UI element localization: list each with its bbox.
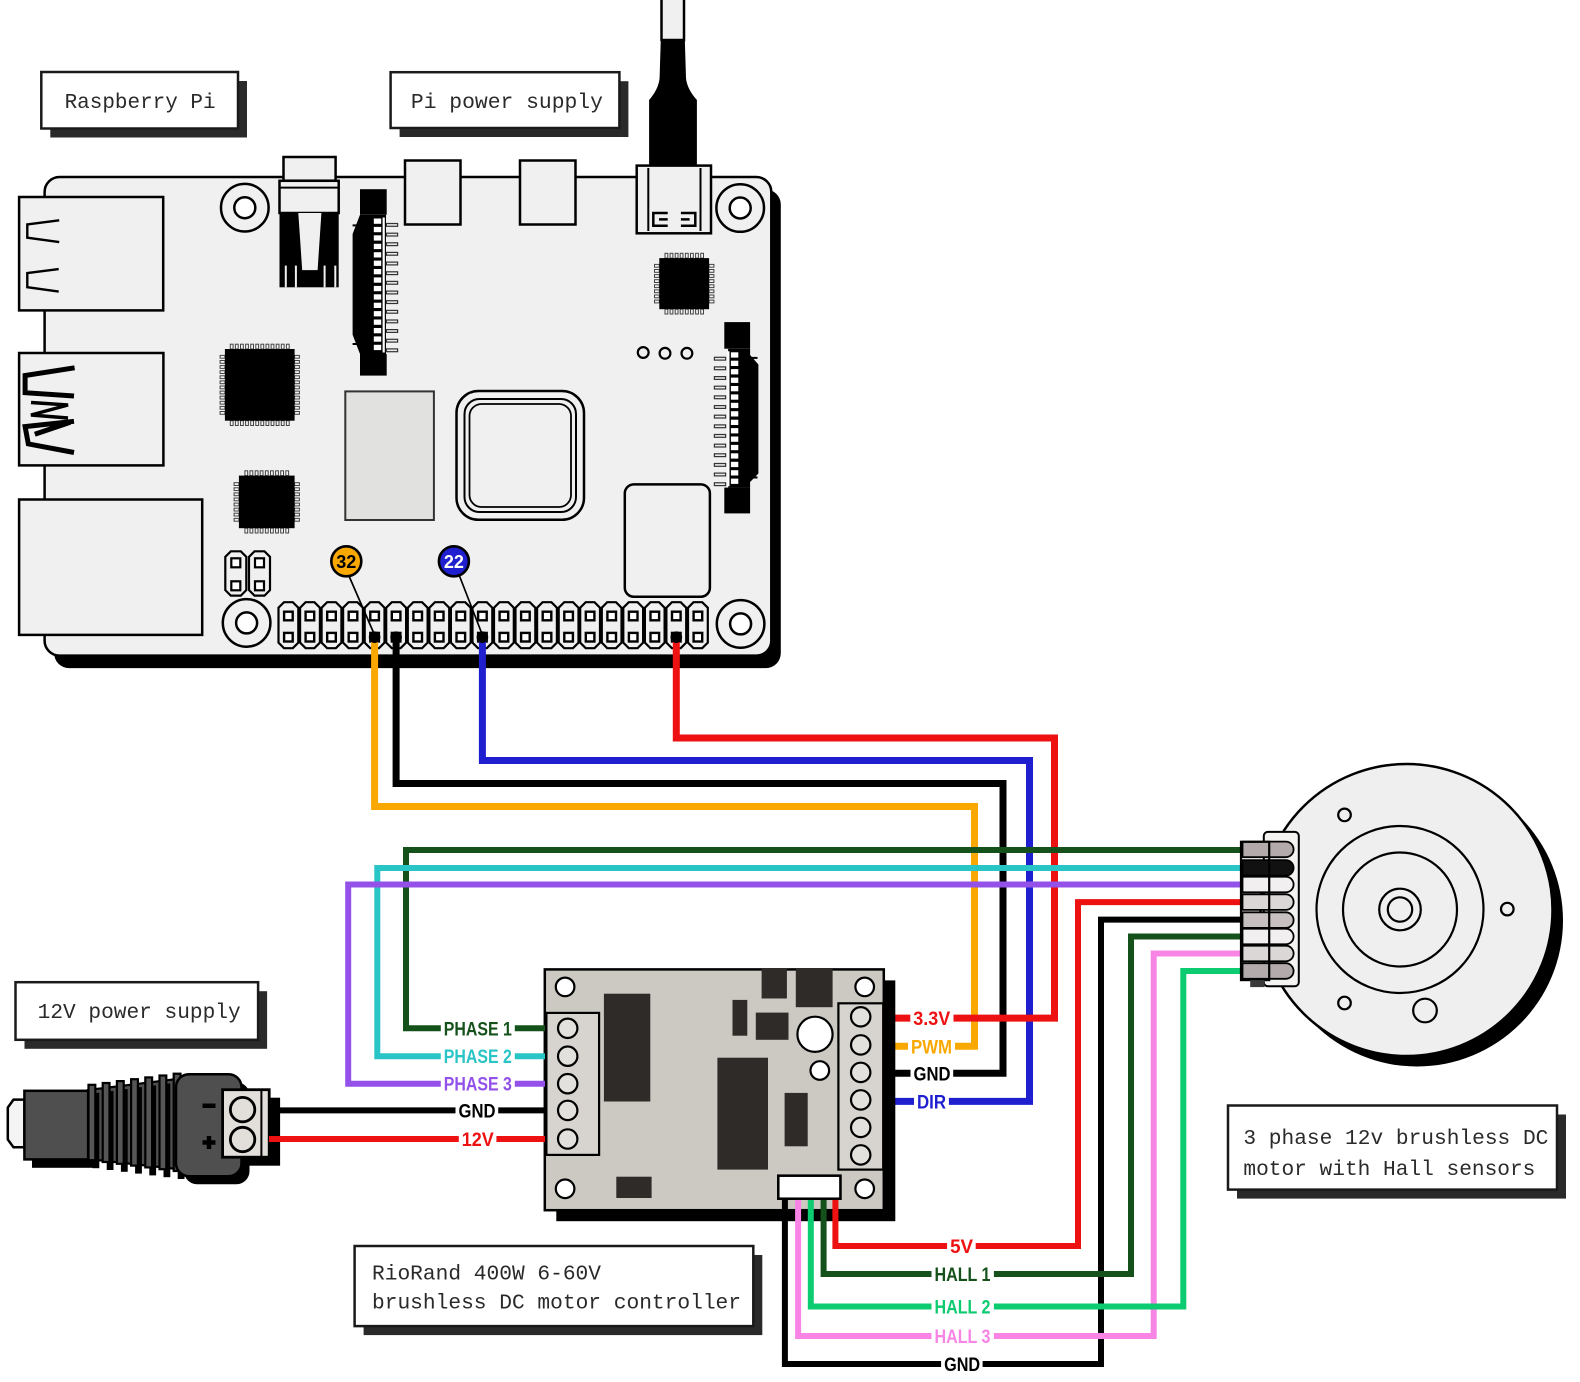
svg-text:5V: 5V [950,1236,973,1258]
svg-text:GND: GND [459,1100,496,1122]
svg-text:3 phase 12v brushless DC: 3 phase 12v brushless DC [1243,1128,1548,1151]
svg-text:32: 32 [336,552,356,572]
svg-text:12V power supply: 12V power supply [38,1002,241,1025]
svg-text:12V: 12V [462,1129,494,1151]
svg-text:PHASE 2: PHASE 2 [444,1046,512,1068]
svg-text:RioRand 400W 6-60V: RioRand 400W 6-60V [372,1264,601,1287]
svg-text:brushless DC motor controller: brushless DC motor controller [372,1293,741,1316]
svg-text:GND: GND [914,1063,951,1085]
svg-text:HALL 2: HALL 2 [935,1297,991,1319]
svg-text:Pi power supply: Pi power supply [411,92,603,115]
svg-text:Raspberry Pi: Raspberry Pi [65,92,216,115]
svg-text:22: 22 [444,552,464,572]
svg-text:GND: GND [944,1354,980,1376]
svg-text:HALL 1: HALL 1 [935,1264,991,1286]
svg-text:PHASE 1: PHASE 1 [444,1018,512,1040]
svg-text:motor with Hall sensors: motor with Hall sensors [1243,1159,1535,1182]
svg-text:3.3V: 3.3V [913,1008,950,1030]
svg-text:PWM: PWM [911,1036,952,1058]
svg-text:DIR: DIR [917,1091,946,1113]
svg-text:HALL 3: HALL 3 [935,1326,991,1348]
svg-text:PHASE 3: PHASE 3 [444,1074,512,1096]
